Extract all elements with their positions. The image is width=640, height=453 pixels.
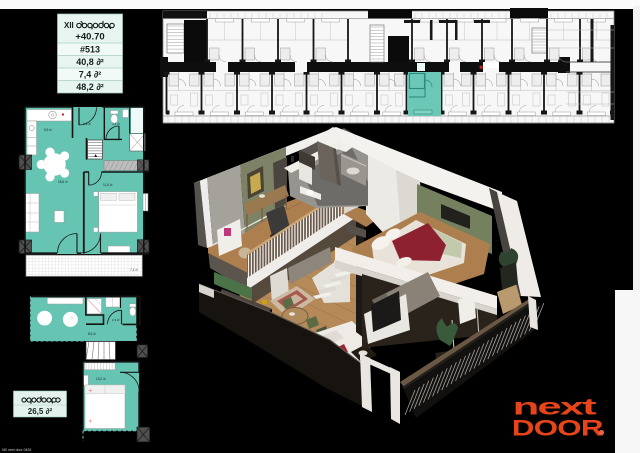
svg-text:48,2 ∂²: 48,2 ∂² [76, 82, 103, 92]
svg-text:XII: XII [64, 21, 74, 30]
svg-text:40,8 ∂²: 40,8 ∂² [76, 57, 103, 67]
svg-text:+40.70: +40.70 [75, 32, 104, 43]
svg-text:11,8 ∂²: 11,8 ∂² [103, 183, 113, 187]
svg-text:6,3 ∂²: 6,3 ∂² [83, 122, 91, 126]
svg-text:7,4 ∂²: 7,4 ∂² [130, 268, 138, 272]
svg-text:8,5 ∂²: 8,5 ∂² [44, 128, 52, 132]
svg-text:26,5 ∂²: 26,5 ∂² [28, 407, 53, 416]
svg-text:13,2 ∂²: 13,2 ∂² [96, 377, 106, 381]
svg-text:DOOR: DOOR [512, 416, 603, 440]
svg-text:8,6 ∂²: 8,6 ∂² [88, 332, 96, 336]
svg-text:18,6 ∂²: 18,6 ∂² [58, 180, 68, 184]
svg-text:ND next door 0453: ND next door 0453 [2, 448, 31, 452]
svg-text:2,3 ∂²: 2,3 ∂² [112, 318, 120, 322]
svg-text:7,4 ∂²: 7,4 ∂² [79, 70, 101, 80]
svg-text:#513: #513 [80, 45, 100, 55]
svg-text:3,4 ∂²: 3,4 ∂² [112, 122, 120, 126]
